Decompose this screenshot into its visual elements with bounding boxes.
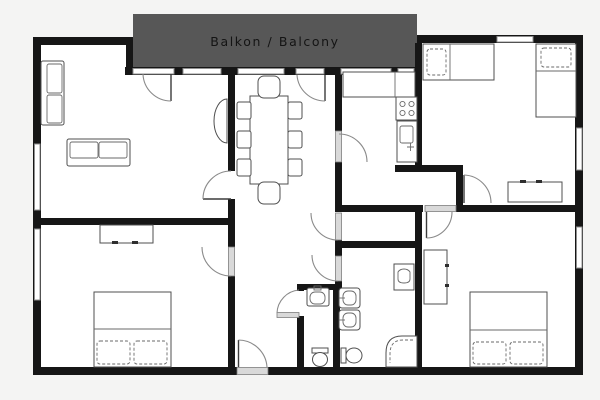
window-icon (497, 37, 533, 43)
wall-wc-left-bottom (297, 316, 304, 368)
sofa-icon (67, 139, 130, 166)
dining-table-icon (250, 96, 288, 184)
window-icon (35, 229, 41, 300)
double-bed-icon (470, 292, 547, 367)
wall-vestibule-stub (456, 165, 463, 212)
single-bed-icon (423, 44, 494, 80)
chair-icon (258, 182, 280, 204)
pillow-icon (541, 48, 571, 67)
washing-machine-icon (394, 264, 414, 290)
toilet-icon (312, 348, 328, 367)
pillow-icon (134, 341, 167, 364)
dresser-icon (508, 180, 562, 202)
bathroom-sink-icon (339, 310, 360, 330)
wardrobe-icon (424, 250, 449, 304)
pillow-icon (427, 49, 446, 75)
storage-room (342, 212, 415, 241)
window-icon (183, 69, 221, 75)
floor-plan: Balkon / Balcony (0, 0, 600, 400)
chair-icon (288, 102, 302, 119)
corner-shower-icon (386, 336, 417, 367)
kitchen-counter-icon (343, 72, 415, 97)
chair-icon (237, 131, 251, 148)
chair-icon (237, 102, 251, 119)
wall-dining-kitchen-lower (335, 162, 342, 212)
pillow-icon (97, 341, 130, 364)
toilet-icon (341, 348, 362, 363)
hallway (235, 203, 297, 367)
window-icon (296, 69, 324, 75)
wall-hall-bath-upper (335, 240, 342, 256)
pillow-icon (510, 342, 543, 364)
window-icon (35, 144, 41, 210)
dresser-icon (100, 225, 153, 244)
wall-balcony-connector (126, 43, 133, 68)
bathroom-sink-icon (307, 286, 329, 306)
single-bed-icon (536, 44, 576, 117)
chair-icon (237, 159, 251, 176)
wall-kids-bedroom-right (456, 205, 577, 212)
balcony-label: Balkon / Balcony (210, 34, 339, 49)
window-icon (577, 227, 583, 268)
chair-icon (288, 159, 302, 176)
sofa-icon (41, 61, 64, 125)
wall-dining-kitchen-upper (335, 70, 342, 131)
pillow-icon (473, 342, 506, 364)
wall-hall-bedroom-left (228, 276, 235, 368)
window-icon (577, 128, 583, 170)
bathroom-sink-icon (339, 288, 360, 308)
wall-bottom-left (33, 367, 237, 375)
stove-icon (396, 97, 417, 120)
vestibule (417, 172, 456, 205)
wall-living-bedroom (33, 218, 235, 225)
kitchen-sink-icon (397, 121, 417, 162)
floor-plan-canvas: Balkon / Balcony (0, 0, 600, 400)
window-icon (133, 69, 174, 75)
wall-bath-top (335, 205, 423, 212)
wall-storage-bottom (335, 241, 420, 248)
window-icon (238, 69, 284, 75)
double-bed-icon (94, 292, 171, 367)
chair-icon (288, 131, 302, 148)
wall-living-hall-upper (228, 70, 235, 171)
wall-vestibule-top (395, 165, 462, 172)
wall-bottom-right (268, 367, 583, 375)
wall-top-left (33, 37, 133, 45)
chair-icon (258, 76, 280, 98)
